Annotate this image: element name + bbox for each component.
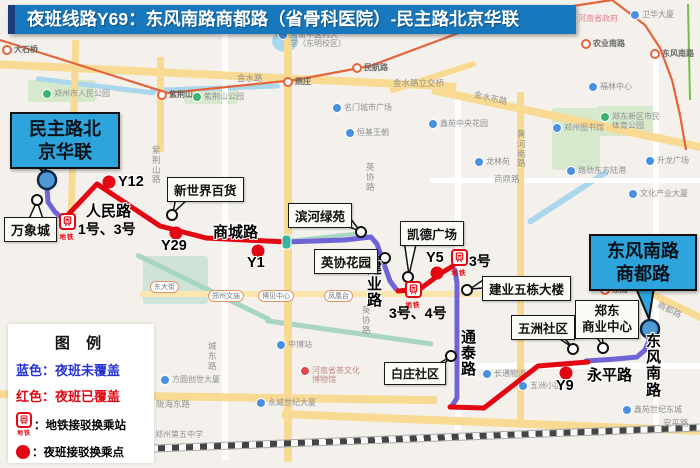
bus-stop-label: Y29	[161, 238, 187, 254]
poi-callout: 英协花园	[314, 249, 378, 274]
legend-metro-label: ：地铁接驳换乘站	[34, 417, 126, 433]
terminal-callout-line: 东风南路	[599, 240, 687, 263]
poi-callout: 建业五栋大楼	[482, 276, 571, 301]
bus-stop-dot	[431, 267, 444, 280]
basemap-metro-entrance-icon	[282, 235, 291, 249]
poi-callout: 凯德广场	[400, 221, 464, 246]
poi-callout-line: 商业中心	[582, 319, 632, 335]
metro-lines-label: 1号、3号	[78, 219, 136, 239]
poi-connector-dot	[568, 344, 578, 354]
route-title-bar: 夜班线路Y69：东风南路商都路（省骨科医院）-民主路北京华联	[8, 5, 576, 34]
poi-connector-dot	[32, 195, 42, 205]
map-canvas[interactable]: 大石桥 紫荆山 燕庄 民航路 农业南路 东风南路 东周 金水路 金水路立交桥 金…	[0, 0, 700, 468]
terminal-callout: 民主路北 京华联	[10, 112, 120, 169]
route-uncovered-segment	[452, 270, 457, 406]
terminal-callout-line: 商都路	[599, 263, 687, 286]
poi-connector-dot	[462, 285, 472, 295]
route-road-label: 永平路	[587, 364, 632, 385]
metro-caption: 地铁	[60, 231, 75, 241]
bus-stop-label: Y12	[118, 174, 144, 190]
poi-callout: 郑东 商业中心	[575, 300, 639, 339]
legend-blue-label: 蓝色：夜班未覆盖	[16, 360, 120, 379]
metro-lines-label: 3号	[469, 251, 491, 271]
poi-callout: 新世界百货	[167, 177, 244, 202]
route-title: 夜班线路Y69：东风南路商都路（省骨科医院）-民主路北京华联	[27, 9, 519, 29]
terminal-callout-line: 京华联	[20, 141, 110, 164]
poi-callout: 滨河绿苑	[288, 203, 352, 228]
poi-connector-dot	[446, 351, 456, 361]
poi-callout-line: 郑东	[582, 303, 632, 319]
stop-legend-icon	[16, 445, 30, 459]
route-road-label: 通泰路	[461, 330, 477, 379]
terminal-callout: 东风南路 商都路	[589, 234, 697, 291]
bus-stop-dot	[103, 176, 116, 189]
legend-title: 图 例	[16, 332, 146, 353]
metro-logo-icon	[451, 249, 468, 266]
metro-legend-icon: 地铁	[16, 412, 32, 437]
terminal-callout-line: 民主路北	[20, 118, 110, 141]
bus-stop-label: Y1	[247, 255, 265, 271]
metro-interchange-icon: 地铁	[447, 249, 471, 277]
poi-callout: 五洲社区	[511, 315, 575, 340]
route-road-label: 商城路	[213, 221, 258, 242]
metro-logo-icon	[405, 281, 422, 298]
route-road-label: 人民路	[86, 200, 131, 221]
legend-stop-label: ：夜班接驳换乘点	[32, 444, 124, 460]
poi-connector-dot	[356, 227, 366, 237]
bus-stop-label: Y9	[556, 378, 574, 394]
poi-connector-dot	[167, 210, 177, 220]
poi-connector-dot	[598, 343, 608, 353]
legend-panel: 图 例 蓝色：夜班未覆盖 红色：夜班已覆盖 地铁 ：地铁接驳换乘站 ：夜班接驳换…	[8, 324, 154, 463]
route-road-label: 东风南路	[646, 334, 662, 399]
metro-logo-icon	[59, 213, 76, 230]
terminal-dot	[38, 171, 56, 189]
poi-callout: 白庄社区	[384, 362, 446, 385]
legend-red-label: 红色：夜班已覆盖	[16, 386, 120, 405]
metro-lines-label: 3号、4号	[389, 303, 447, 323]
metro-interchange-icon: 地铁	[55, 213, 79, 241]
metro-caption: 地铁	[452, 267, 467, 277]
poi-callout: 万象城	[4, 217, 57, 242]
bus-stop-label: Y5	[426, 250, 444, 266]
